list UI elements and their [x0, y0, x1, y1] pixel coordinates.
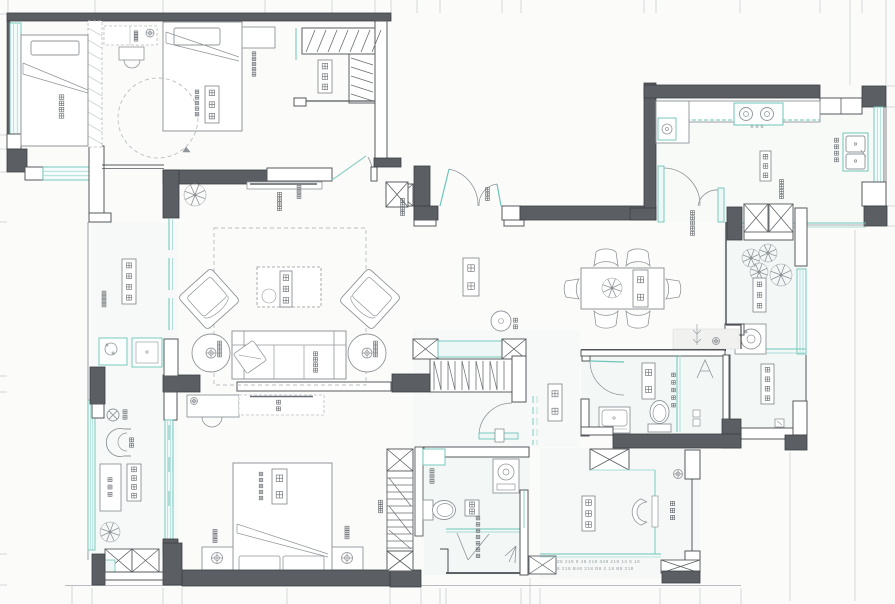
svg-text:8 218 B48 218 B8 2 18 B8 218: 8 218 B48 218 B8 2 18 B8 218 [557, 566, 634, 571]
svg-text:28 218 8 48 218 348 218 13 8 1: 28 218 8 48 218 348 218 13 8 18 [557, 559, 640, 564]
